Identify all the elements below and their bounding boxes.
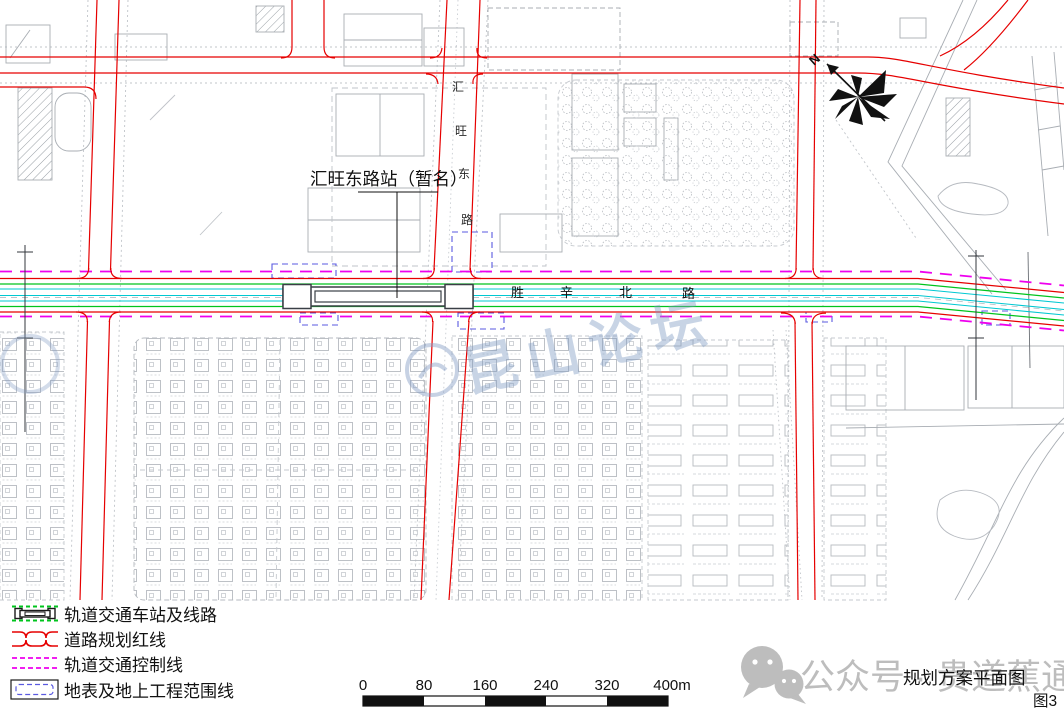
legend-label-range: 地表及地上工程范围线 [64,682,234,701]
svg-text:0: 0 [359,677,367,694]
station-symbol [283,285,473,309]
legend-label-rail: 轨道交通车站及线路 [64,606,217,625]
legend-label-redline: 道路规划红线 [64,631,166,650]
north-arrow: N [806,51,897,125]
svg-text:辛: 辛 [560,285,573,300]
rail-corridor [0,284,1064,321]
svg-text:东: 东 [458,167,470,181]
drawing-title: 规划方案平面图 [903,668,1026,688]
vertical-road-name: 汇 旺 东 路 [452,80,473,227]
svg-text:胜: 胜 [511,285,524,300]
svg-text:240: 240 [533,677,558,694]
svg-text:路: 路 [461,212,473,227]
base-linework [0,0,1064,600]
station-leader-line [358,192,438,298]
svg-text:旺: 旺 [455,124,467,138]
legend-label-control: 轨道交通控制线 [64,656,183,675]
north-label: N [806,51,823,68]
legend-symbol-road-redline [12,632,58,646]
scale-bar: 0 80 160 240 320 400m [359,677,691,706]
legend-symbol-rail-station [12,607,58,621]
legend-symbol-control-line [12,658,58,668]
wechat-icon [741,646,806,704]
legend: 轨道交通车站及线路 道路规划红线 轨道交通控制线 地表及地上工程范围线 [11,606,234,701]
map-canvas: 汇旺东路站（暂名） 汇 旺 东 路 胜 辛 北 路 N [0,0,1064,710]
legend-symbol-range-line [11,680,58,699]
svg-text:160: 160 [472,677,497,694]
svg-text:北: 北 [619,285,632,300]
horizontal-road-name: 胜 辛 北 路 [511,285,695,301]
svg-text:320: 320 [594,677,619,694]
svg-text:400m: 400m [653,677,691,694]
svg-text:汇: 汇 [452,80,464,94]
svg-text:80: 80 [416,677,433,694]
figure-number: 图3 [1033,693,1057,710]
station-label: 汇旺东路站（暂名） [310,169,468,189]
planning-map-page: 汇旺东路站（暂名） 汇 旺 东 路 胜 辛 北 路 N [0,0,1064,710]
